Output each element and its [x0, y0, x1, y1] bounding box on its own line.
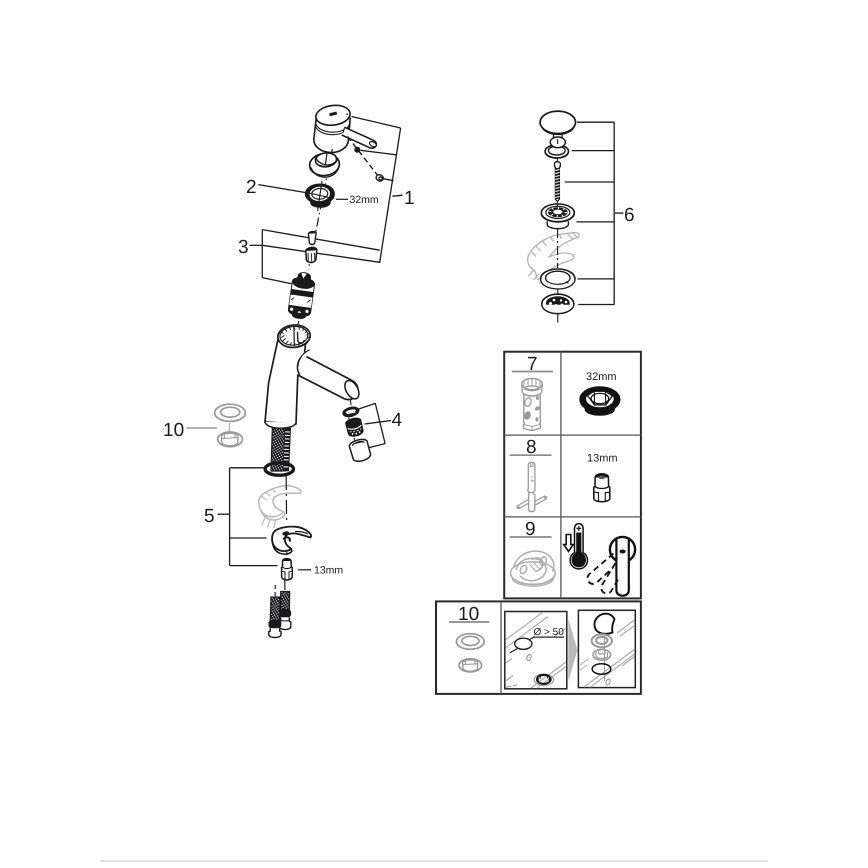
svg-text:10: 10 [163, 420, 184, 441]
svg-text:13mm: 13mm [587, 453, 618, 465]
svg-text:5: 5 [204, 506, 215, 527]
svg-text:32mm: 32mm [350, 194, 379, 206]
svg-text:3: 3 [238, 237, 249, 258]
svg-text:13mm: 13mm [314, 564, 343, 576]
svg-text:Ø > 50: Ø > 50 [534, 627, 565, 638]
svg-text:2: 2 [246, 177, 257, 198]
svg-text:6: 6 [624, 205, 635, 226]
svg-text:4: 4 [392, 410, 403, 431]
svg-text:1: 1 [404, 188, 415, 209]
svg-text:32mm: 32mm [586, 371, 617, 383]
